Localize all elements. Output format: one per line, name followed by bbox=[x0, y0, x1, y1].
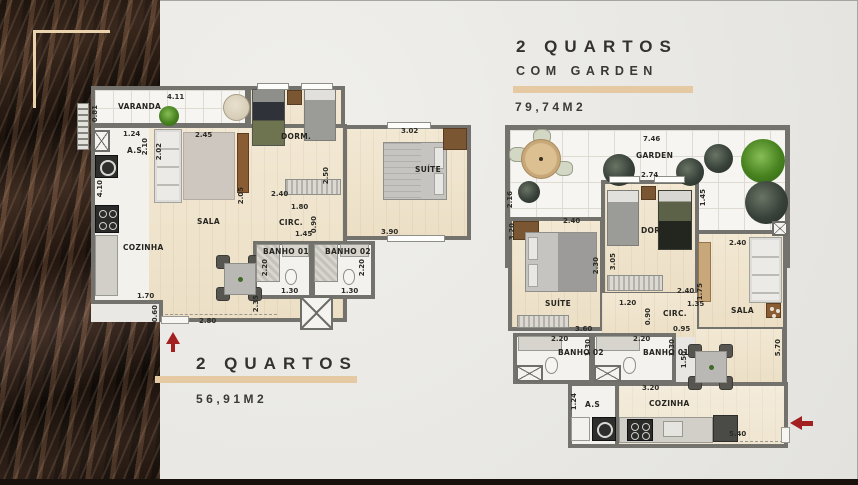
wardrobe bbox=[607, 275, 663, 291]
room-label: BANHO 02 bbox=[325, 248, 371, 256]
kitchen-sink bbox=[663, 421, 683, 437]
dimension: 2.20 bbox=[633, 336, 650, 343]
washer-icon bbox=[592, 417, 616, 441]
dimension: 4.11 bbox=[167, 94, 184, 101]
tree-icon bbox=[741, 139, 785, 183]
plant-icon bbox=[518, 181, 540, 203]
dimension: 5.70 bbox=[775, 339, 782, 356]
dimension: 1.35 bbox=[687, 301, 704, 308]
room-label: CIRC. bbox=[279, 219, 303, 227]
accent-underline bbox=[513, 86, 693, 93]
plant-icon bbox=[159, 106, 179, 126]
dimension: 2.40 bbox=[563, 218, 580, 225]
side-table bbox=[766, 303, 781, 318]
window bbox=[654, 176, 685, 183]
dimension: 1.24 bbox=[123, 131, 140, 138]
room-label: SUÍTE bbox=[545, 300, 571, 308]
dimension: 2.20 bbox=[359, 259, 366, 276]
dimension: 0.90 bbox=[645, 308, 652, 325]
plan-title: 2 QUARTOS bbox=[196, 354, 358, 374]
single-bed bbox=[607, 190, 639, 246]
room-label: SALA bbox=[197, 218, 220, 226]
dimension: 2.40 bbox=[677, 288, 694, 295]
round-table bbox=[521, 139, 561, 179]
room-label: GARDEN bbox=[636, 152, 673, 160]
toilet-icon bbox=[623, 357, 636, 374]
nightstand bbox=[287, 90, 302, 105]
floor-plan-2-quartos: VARANDA A.S COZINHA SALA CIRC. DORM. SUÍ… bbox=[85, 85, 477, 347]
room-label: A.S bbox=[127, 147, 142, 155]
dimension: 2.02 bbox=[156, 143, 163, 160]
accent-underline bbox=[155, 376, 357, 383]
room-label: VARANDA bbox=[118, 103, 161, 111]
dimension: 2.30 bbox=[593, 257, 600, 274]
room-label: DORM. bbox=[281, 133, 311, 141]
single-bed bbox=[658, 190, 692, 250]
shaft-icon bbox=[772, 221, 788, 236]
dimension: 2.45 bbox=[195, 132, 212, 139]
laundry-sink bbox=[571, 417, 590, 441]
dimension: 1.20 bbox=[619, 300, 636, 307]
dimension: 2.16 bbox=[507, 191, 514, 208]
plan-area: 79,74M2 bbox=[515, 100, 586, 114]
wardrobe bbox=[443, 128, 467, 150]
room-label: BANHO 02 bbox=[558, 349, 604, 357]
bottom-border-bar bbox=[0, 479, 858, 485]
sofa bbox=[154, 129, 182, 203]
ottoman bbox=[223, 94, 250, 121]
corner-bracket-decoration bbox=[33, 30, 110, 33]
wardrobe bbox=[285, 179, 341, 195]
dimension: 1.30 bbox=[585, 339, 592, 356]
dimension: 1.75 bbox=[697, 283, 704, 300]
plan-subtitle: COM GARDEN bbox=[516, 64, 658, 78]
dimension: 1.30 bbox=[281, 288, 298, 295]
floor-plan-sheet: VARANDA A.S COZINHA SALA CIRC. DORM. SUÍ… bbox=[0, 0, 858, 485]
dimension: 2.10 bbox=[142, 138, 149, 155]
dimension: 2.40 bbox=[729, 240, 746, 247]
toilet-icon bbox=[545, 357, 558, 374]
room-label: DORM. bbox=[641, 227, 671, 235]
dimension: 2.50 bbox=[323, 167, 330, 184]
dimension: 1.80 bbox=[291, 204, 308, 211]
dimension: 2.20 bbox=[551, 336, 568, 343]
dimension: 7.46 bbox=[643, 136, 660, 143]
dimension: 1.30 bbox=[669, 339, 676, 356]
shaft-icon bbox=[594, 365, 621, 382]
double-bed bbox=[525, 232, 597, 292]
shaft-icon bbox=[93, 130, 110, 152]
dimension: 3.90 bbox=[381, 229, 398, 236]
dimension: 3.05 bbox=[610, 253, 617, 270]
dimension: 3.20 bbox=[509, 223, 516, 240]
entry-arrow-up-icon bbox=[166, 332, 180, 352]
rug bbox=[183, 132, 235, 200]
room-label: A.S bbox=[585, 401, 600, 409]
dimension: 3.20 bbox=[642, 385, 659, 392]
dimension: 2.05 bbox=[238, 187, 245, 204]
dimension-line bbox=[165, 314, 277, 315]
dimension: 2.74 bbox=[641, 172, 658, 179]
elevator-icon bbox=[300, 296, 333, 330]
room-label: SUÍTE bbox=[415, 166, 441, 174]
dimension: 1.50 bbox=[681, 351, 688, 368]
corner-bracket-decoration bbox=[33, 30, 36, 108]
room-label: COZINHA bbox=[123, 244, 164, 252]
dimension: 3.60 bbox=[575, 326, 592, 333]
toilet-icon bbox=[343, 269, 355, 285]
dimension: 5.40 bbox=[729, 431, 746, 438]
window bbox=[301, 83, 333, 90]
plan-title: 2 QUARTOS bbox=[516, 37, 678, 57]
kitchen-counter bbox=[95, 235, 118, 296]
dimension: 2.40 bbox=[271, 191, 288, 198]
window bbox=[257, 83, 289, 90]
entry-arrow-left-icon bbox=[790, 416, 813, 430]
window-bench bbox=[517, 315, 569, 328]
toilet-icon bbox=[285, 269, 297, 285]
dimension: 1.45 bbox=[700, 189, 707, 206]
shaft-icon bbox=[516, 365, 543, 382]
dimension: 2.35 bbox=[253, 295, 260, 312]
plant-icon bbox=[704, 144, 733, 173]
nightstand bbox=[641, 186, 656, 200]
room-label: COZINHA bbox=[649, 400, 690, 408]
entry-door bbox=[161, 316, 189, 324]
room-label: BANHO 01 bbox=[263, 248, 309, 256]
dining-table bbox=[224, 263, 256, 295]
stove-icon bbox=[627, 419, 653, 441]
plan-area: 56,91M2 bbox=[196, 392, 267, 406]
dimension: 2.20 bbox=[262, 259, 269, 276]
tv-panel bbox=[237, 133, 249, 193]
washer-icon bbox=[95, 155, 118, 178]
dimension: 0.95 bbox=[673, 326, 690, 333]
dimension: 3.02 bbox=[401, 128, 418, 135]
window bbox=[387, 235, 445, 242]
room-label: CIRC. bbox=[663, 310, 687, 318]
dimension: 1.30 bbox=[341, 288, 358, 295]
dimension: 1.70 bbox=[137, 293, 154, 300]
sofa bbox=[749, 237, 782, 303]
dimension: 1.24 bbox=[571, 393, 578, 410]
window bbox=[609, 176, 640, 183]
dimension: 4.10 bbox=[97, 180, 104, 197]
dining-table bbox=[695, 351, 727, 383]
dimension: 0.60 bbox=[152, 305, 159, 322]
tree-icon bbox=[745, 181, 788, 224]
balcony-railing bbox=[77, 103, 89, 150]
floor-plan-2-quartos-garden: GARDEN DORM. SUÍTE SALA CIRC. BANHO 01 B… bbox=[505, 125, 797, 457]
dimension: 1.45 bbox=[295, 231, 312, 238]
stove-icon bbox=[95, 205, 119, 233]
room-label: SALA bbox=[731, 307, 754, 315]
dimension: 2.80 bbox=[199, 318, 216, 325]
entry-door bbox=[781, 427, 790, 443]
dimension: 0.81 bbox=[92, 105, 99, 122]
